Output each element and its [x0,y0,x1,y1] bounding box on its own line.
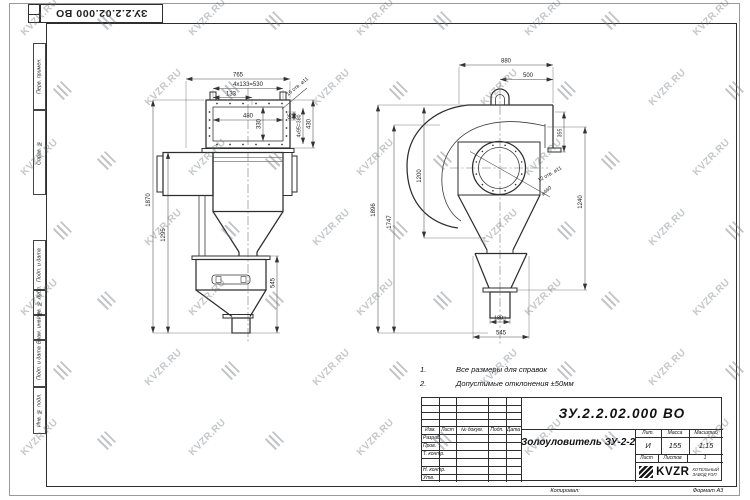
side-view [407,89,561,346]
col-dokum: № докум. [456,426,488,434]
drawing-sheet: ЗУ.2.2.02.000 ВО Перв. примен. Справ. № … [0,0,750,500]
dim-front-bolt-col: 4x95=380 [297,114,303,137]
dim-front-height-body: 1295 [161,228,167,242]
mass-label: Масса [661,429,689,437]
dim-front-width-overall: 765 [233,73,244,79]
title-block-doc-name: Золоуловитель ЗУ-2-2 [521,432,635,452]
dim-front-bolt-row: 4x133=530 [233,82,264,88]
col-list: Лист [439,426,456,434]
dim-side-height-inner: 1747 [387,215,393,229]
sheets-label: Листов [658,454,687,462]
row-razrab: Разраб. [423,434,456,442]
dim-front-flange-height: 430 [307,118,313,129]
company-logo: KVZR КОТЕЛЬНЫЙ ЗАВОД РЭП [635,462,723,482]
title-block-designation: ЗУ.2.2.02.000 ВО [521,398,723,429]
dim-front-hopper-height: 545 [271,277,277,288]
dim-front-bolt-pitch: 95 [288,113,294,119]
kvzr-logo-icon [639,466,653,478]
row-utv: Утв. [423,474,456,482]
col-izm: Изм. [422,426,439,434]
side-bolt-circle-callout: ⌀460 [540,185,553,197]
kvzr-logo-text: KVZR [656,466,689,478]
lit-label: Лит. [635,429,661,437]
dim-side-height-overall: 1896 [371,203,377,217]
note-1-text: Все размеры для справок [456,365,547,374]
col-data: Дата [506,426,521,434]
dim-front-bolt-step: 133 [226,92,237,98]
row-tkontr: Т. контр. [423,450,456,458]
title-block: Изм. Лист № докум. Подп. Дата Разраб. Пр… [421,397,722,481]
side-holes-callout: 12 отв. ⌀11 [537,165,563,184]
side-view-dimensions: 880 500 1896 1747 1200 1240 355 12 отв. … [371,59,587,340]
copied-label: Копировал: [530,488,600,494]
dim-side-outlet-square: 180□ [494,316,507,322]
dim-side-hopper-width: 545 [496,331,507,337]
dim-side-outlet-offset: 500 [523,73,534,79]
scale-label: Масштаб [689,429,723,437]
scale-value: 1:15 [689,437,723,454]
dim-side-outlet-len: 355 [558,129,564,138]
mass-value: 155 [661,437,689,454]
note-1-number: 1. [420,365,426,374]
dim-front-inner-height: 330 [257,118,263,129]
dim-side-inlet-height: 1200 [417,169,423,183]
dim-side-outlet-height: 1240 [578,195,584,209]
col-podp: Подп. [488,426,506,434]
row-prov: Пров. [423,442,456,450]
sheets-value: 1 [687,454,723,462]
front-view [157,88,297,342]
sheet-label: Лист [635,454,658,462]
format-label: Формат А3 [683,488,733,494]
dim-front-height-overall: 1870 [146,193,152,207]
dim-side-width-overall: 880 [501,59,512,65]
dim-front-inner-width: 480 [243,114,254,120]
front-holes-callout: 16 отв. ⌀11 [285,76,309,97]
note-2-number: 2. [420,379,426,388]
note-2-text: Допустимые отклонения ±50мм [456,379,574,388]
lit-value: И [635,437,661,454]
kvzr-logo-sub2: ЗАВОД РЭП [692,472,718,477]
row-nkontr: Н. контр. [423,466,456,474]
